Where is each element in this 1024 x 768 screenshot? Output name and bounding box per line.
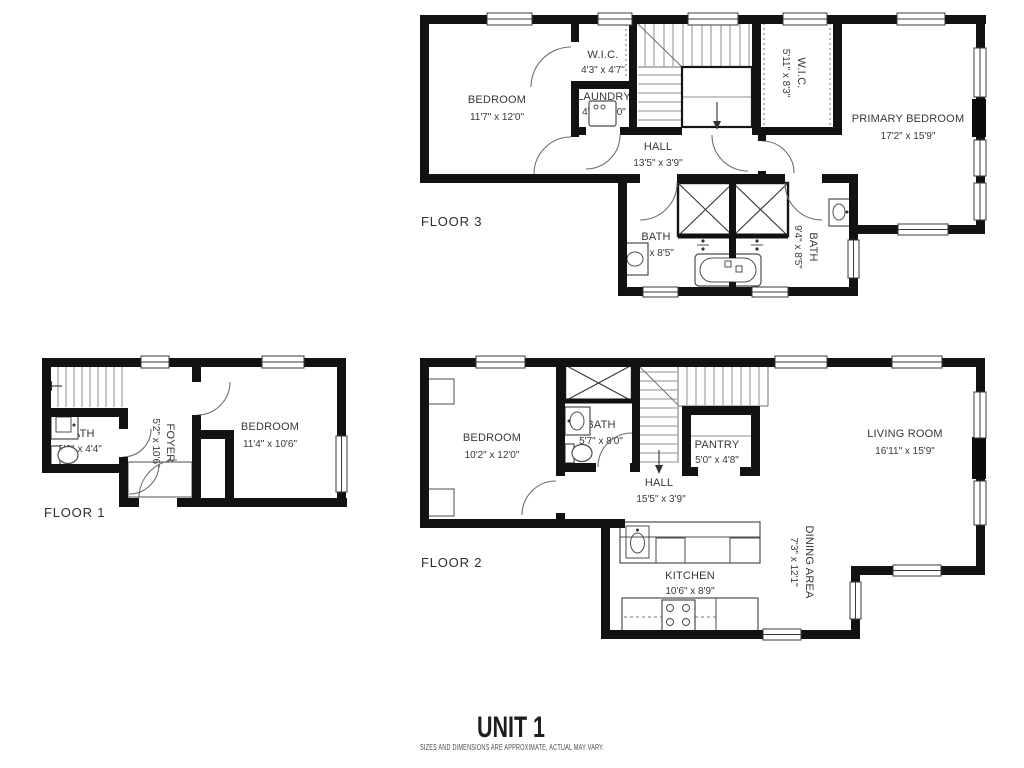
room-dims: 5'2" x 10'6" [150,418,161,468]
room-label: BEDROOM [463,432,521,444]
room-label: W.I.C. [795,57,807,88]
room-label: BEDROOM [241,421,299,433]
room-label: BATH [807,232,819,261]
shower-icon [733,183,788,236]
washer-icon [589,101,616,126]
toilet-icon [565,444,592,463]
rotated-label-bath: BATH 9'4" x 8'5" [792,225,819,269]
floorplan-drawing: BEDROOM 11'7" x 12'0" W.I.C. 4'3" x 4'7"… [0,0,1024,768]
floor-1-room-labels: BATH 5'6" x 4'4" FOYER 5'2" x 10'6" BEDR… [58,418,299,468]
closet-outline [426,489,454,516]
floor-2-label: FLOOR 2 [421,555,482,570]
shower-icon [565,365,632,401]
room-label: LIVING ROOM [867,428,943,440]
room-dims: 10'6" x 8'9" [665,586,715,597]
room-dims: 9'4" x 8'5" [792,225,803,269]
room-label: PRIMARY BEDROOM [852,113,965,125]
room-label: KITCHEN [665,570,715,582]
room-dims: 11'7" x 12'0" [470,112,525,123]
sink-icon [829,199,851,226]
room-dims: 10'2" x 12'0" [465,450,520,461]
stairs-icon [638,24,752,130]
floor-1-label: FLOOR 1 [44,505,105,520]
room-dims: 4'3" x 4'7" [581,65,625,76]
room-dims: 5'11" x 8'3" [780,49,791,98]
stairs-icon [43,367,122,407]
room-label: HALL [644,141,672,153]
kitchen-counter [622,598,758,633]
room-dims: 17'2" x 15'9" [881,131,936,142]
room-label: BATH [586,419,615,431]
room-label: DINING AREA [803,525,815,599]
floor-2-plan: BEDROOM 10'2" x 12'0" BATH 5'7" x 8'0" P… [420,356,986,640]
rotated-label-wic: W.I.C. 5'11" x 8'3" [780,49,807,98]
room-label: FOYER [164,424,176,463]
floorplan-page: BEDROOM 11'7" x 12'0" W.I.C. 4'3" x 4'7"… [0,0,1024,768]
bathtub-icon [695,254,761,286]
room-label: BATH [641,231,670,243]
room-dims: 7'3" x 12'1" [788,537,799,587]
closet-outline [426,379,454,404]
unit-title: UNIT 1 [477,711,545,744]
room-label: HALL [645,477,673,489]
room-label: BEDROOM [468,94,526,106]
room-label: W.I.C. [587,49,618,61]
floor-3-label: FLOOR 3 [421,214,482,229]
shower-icon [678,183,733,236]
kitchen-island [620,522,760,563]
footer: UNIT 1 SIZES AND DIMENSIONS ARE APPROXIM… [420,711,604,752]
room-dims: 11'4" x 10'6" [243,439,298,450]
room-label: PANTRY [695,439,740,451]
disclaimer-text: SIZES AND DIMENSIONS ARE APPROXIMATE, AC… [420,743,604,752]
room-dims: 5'0" x 4'8" [695,455,739,466]
rotated-label-dining: DINING AREA 7'3" x 12'1" [788,525,815,599]
stove-icon [662,600,695,631]
room-dims: 16'11" x 15'9" [875,446,935,457]
toilet-icon [51,446,78,465]
sink-icon [565,407,590,435]
floor-3-plan: BEDROOM 11'7" x 12'0" W.I.C. 4'3" x 4'7"… [420,13,986,297]
room-dims: 15'5" x 3'9" [636,494,686,505]
room-dims: 13'5" x 3'9" [633,158,683,169]
floor-1-plan: BATH 5'6" x 4'4" FOYER 5'2" x 10'6" BEDR… [42,356,347,520]
